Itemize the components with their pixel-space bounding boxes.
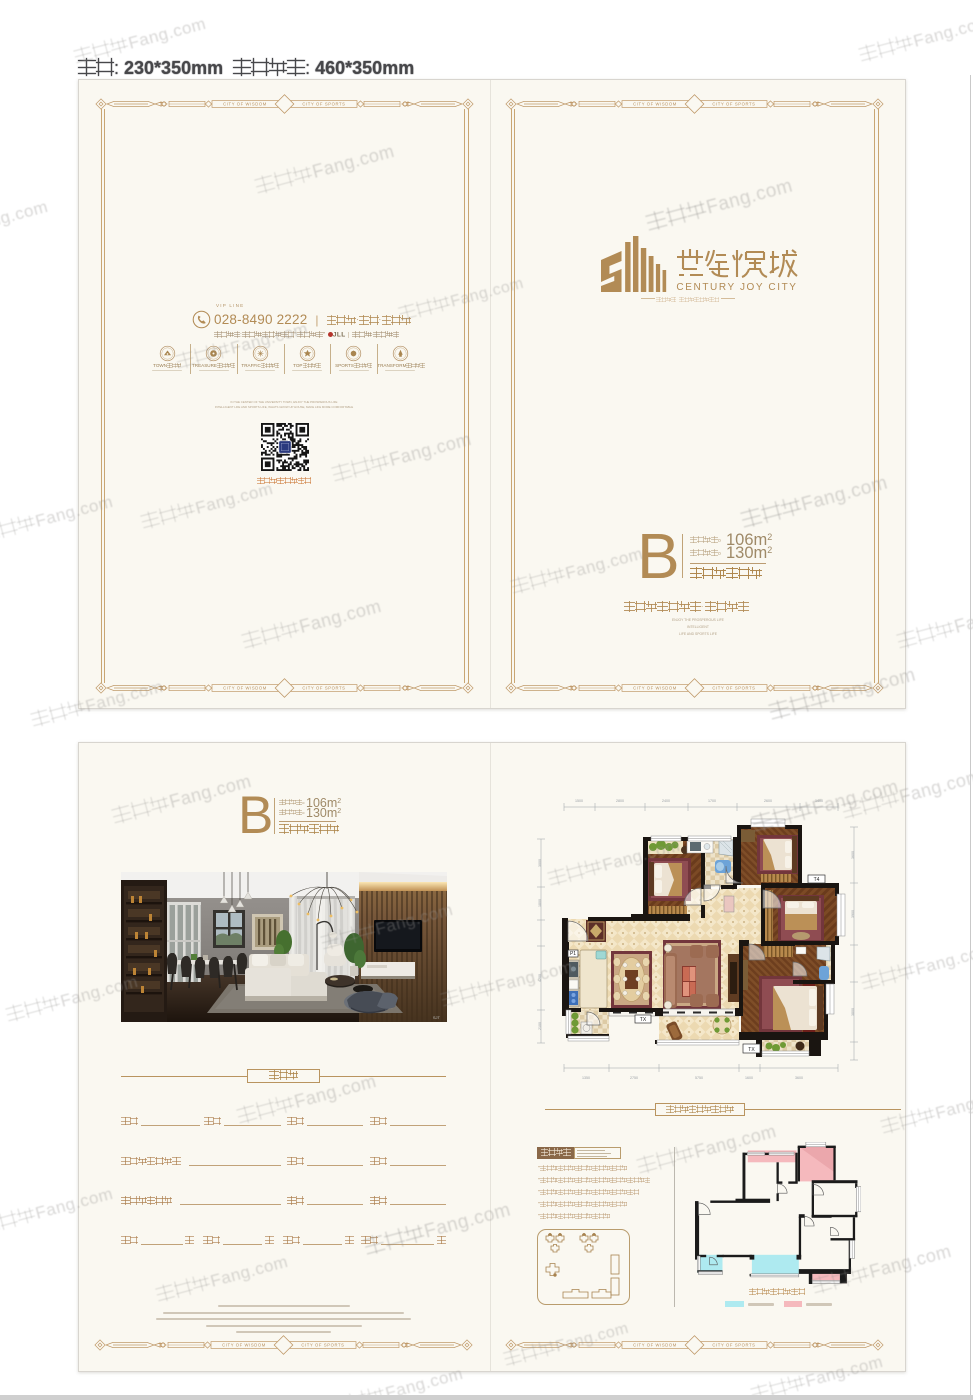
- svg-text:CITY OF WISDOM: CITY OF WISDOM: [223, 685, 267, 690]
- svg-text:CITY OF WISDOM: CITY OF WISDOM: [223, 102, 267, 107]
- svg-text:3900: 3900: [851, 910, 855, 918]
- svg-text:3600: 3600: [795, 1076, 803, 1080]
- svg-text:1800: 1800: [538, 899, 542, 907]
- svg-text:CITY OF SPORTS: CITY OF SPORTS: [712, 102, 755, 107]
- svg-text:1350: 1350: [582, 1076, 590, 1080]
- svg-text:2750: 2750: [630, 1076, 638, 1080]
- svg-text:CITY OF WISDOM: CITY OF WISDOM: [633, 685, 677, 690]
- svg-text:SJT: SJT: [432, 1015, 440, 1020]
- svg-text:CITY OF SPORTS: CITY OF SPORTS: [301, 1343, 344, 1348]
- svg-text:TX: TX: [748, 1047, 755, 1053]
- svg-text:2400: 2400: [662, 799, 670, 803]
- svg-text:1600: 1600: [745, 1076, 753, 1080]
- svg-text:CITY OF SPORTS: CITY OF SPORTS: [712, 685, 755, 690]
- svg-text:2600: 2600: [764, 799, 772, 803]
- svg-text:CITY OF WISDOM: CITY OF WISDOM: [633, 1343, 677, 1348]
- svg-text:3600: 3600: [851, 851, 855, 859]
- svg-text:3000: 3000: [538, 859, 542, 867]
- svg-text:CITY OF SPORTS: CITY OF SPORTS: [302, 685, 345, 690]
- svg-text:P1: P1: [570, 951, 576, 957]
- svg-text:5750: 5750: [695, 1076, 703, 1080]
- svg-text:T4: T4: [814, 877, 820, 883]
- svg-text:CITY OF SPORTS: CITY OF SPORTS: [712, 1343, 755, 1348]
- svg-text:TX: TX: [640, 1017, 647, 1023]
- svg-text:CITY OF SPORTS: CITY OF SPORTS: [302, 102, 345, 107]
- svg-text:CITY OF WISDOM: CITY OF WISDOM: [222, 1343, 266, 1348]
- svg-text:2800: 2800: [616, 799, 624, 803]
- svg-text:3800: 3800: [851, 1008, 855, 1016]
- svg-text:1700: 1700: [708, 799, 716, 803]
- svg-text:2100: 2100: [538, 1022, 542, 1030]
- svg-text:1500: 1500: [575, 799, 583, 803]
- svg-text:CITY OF WISDOM: CITY OF WISDOM: [633, 102, 677, 107]
